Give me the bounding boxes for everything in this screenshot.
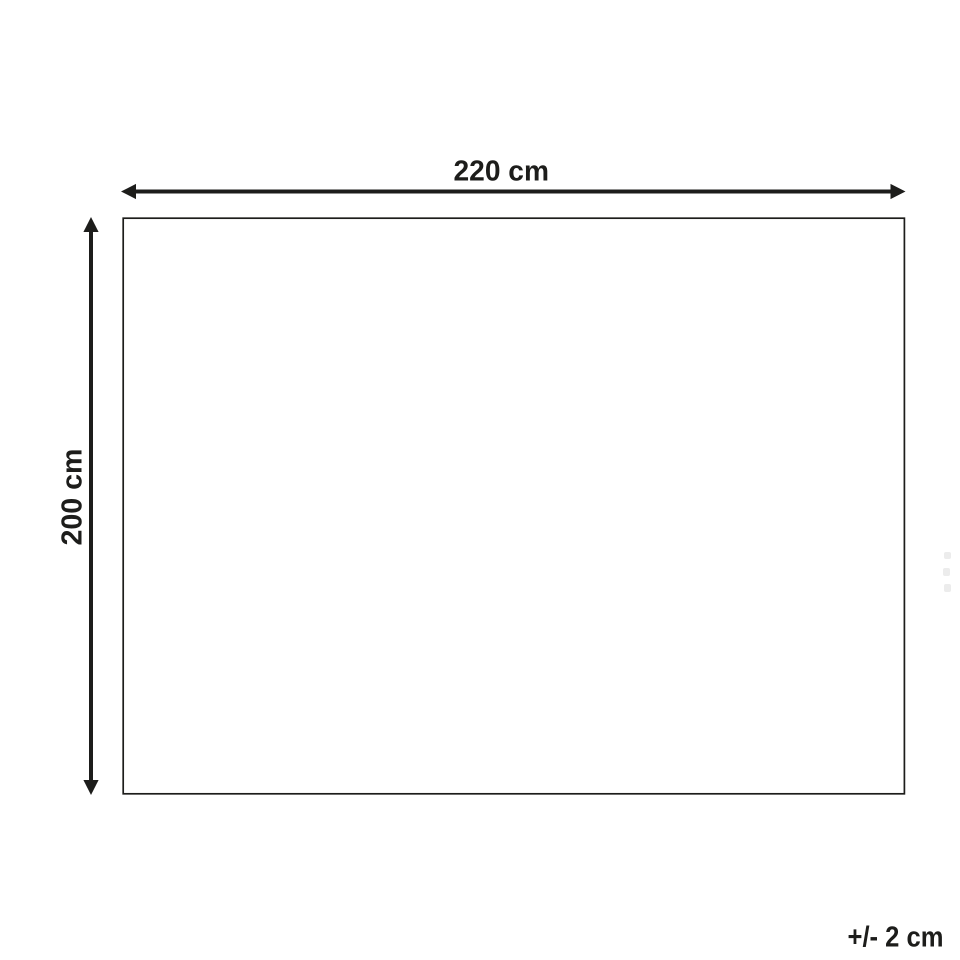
svg-text:200 cm: 200 cm [56,449,88,546]
svg-text:+/- 2 cm: +/- 2 cm [848,921,944,953]
svg-text:220 cm: 220 cm [454,155,550,187]
